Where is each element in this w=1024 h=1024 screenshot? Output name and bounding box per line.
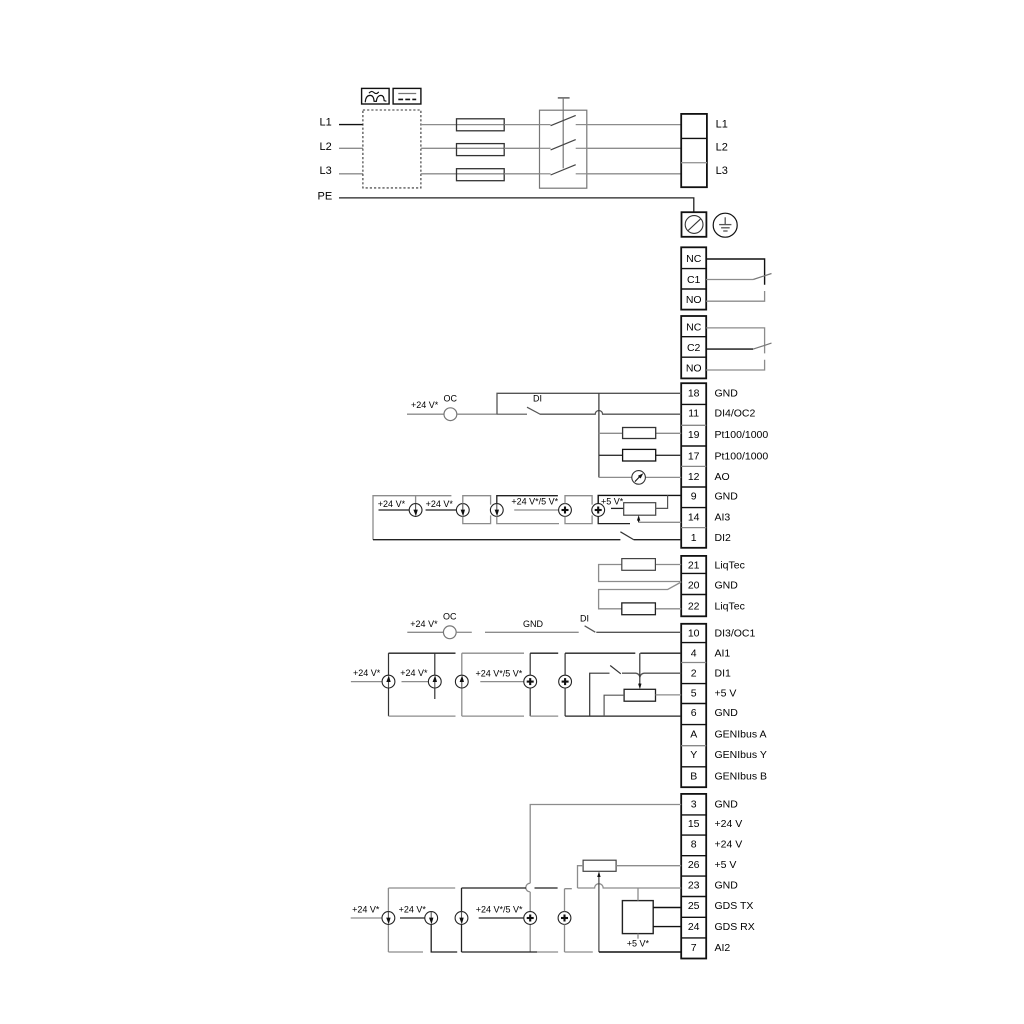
- svg-text:15: 15: [688, 818, 700, 830]
- svg-text:NC: NC: [686, 253, 702, 265]
- svg-text:PE: PE: [318, 190, 333, 202]
- svg-text:+24 V*: +24 V*: [426, 499, 454, 509]
- svg-text:+24 V*/5 V*: +24 V*/5 V*: [511, 497, 558, 507]
- svg-text:DI4/OC2: DI4/OC2: [715, 408, 756, 420]
- svg-text:GND: GND: [715, 490, 739, 502]
- svg-text:23: 23: [688, 879, 700, 891]
- svg-text:DI2: DI2: [715, 532, 732, 544]
- svg-text:12: 12: [688, 471, 700, 483]
- svg-text:22: 22: [688, 600, 700, 612]
- svg-text:2: 2: [691, 667, 697, 679]
- svg-text:OC: OC: [444, 394, 458, 404]
- svg-text:NO: NO: [686, 294, 702, 306]
- svg-text:3: 3: [691, 798, 697, 810]
- svg-text:LiqTec: LiqTec: [715, 600, 745, 612]
- svg-text:8: 8: [691, 838, 697, 850]
- svg-text:26: 26: [688, 859, 700, 871]
- svg-text:C1: C1: [687, 274, 701, 286]
- svg-text:5: 5: [691, 687, 697, 699]
- svg-text:7: 7: [691, 942, 697, 954]
- svg-text:19: 19: [688, 429, 700, 441]
- svg-text:+24 V*: +24 V*: [399, 905, 427, 915]
- svg-text:DI3/OC1: DI3/OC1: [715, 628, 756, 640]
- svg-text:10: 10: [688, 628, 700, 640]
- svg-text:DI1: DI1: [715, 667, 732, 679]
- svg-text:L1: L1: [716, 118, 728, 130]
- svg-text:+24 V*: +24 V*: [411, 400, 439, 410]
- svg-text:GND: GND: [715, 798, 739, 810]
- svg-text:Pt100/1000: Pt100/1000: [715, 429, 769, 441]
- svg-text:18: 18: [688, 387, 700, 399]
- svg-text:AI2: AI2: [715, 942, 731, 954]
- svg-text:GDS RX: GDS RX: [715, 921, 755, 933]
- svg-text:+24 V*: +24 V*: [353, 668, 381, 678]
- svg-text:GENIbus Y: GENIbus Y: [715, 749, 767, 761]
- svg-text:25: 25: [688, 900, 700, 912]
- svg-text:GND: GND: [715, 707, 739, 719]
- svg-text:14: 14: [688, 512, 700, 524]
- svg-text:L3: L3: [320, 165, 332, 177]
- svg-text:GND: GND: [715, 580, 739, 592]
- svg-text:L3: L3: [716, 165, 728, 177]
- svg-text:L1: L1: [320, 116, 332, 128]
- svg-text:GND: GND: [523, 619, 544, 629]
- svg-text:DI: DI: [533, 394, 542, 404]
- svg-text:4: 4: [691, 647, 697, 659]
- svg-text:L2: L2: [320, 141, 332, 153]
- svg-text:AI1: AI1: [715, 647, 731, 659]
- svg-text:+5 V: +5 V: [715, 687, 737, 699]
- svg-text:+24 V*: +24 V*: [400, 668, 428, 678]
- svg-text:24: 24: [688, 921, 700, 933]
- svg-text:Y: Y: [690, 749, 697, 761]
- svg-text:GENIbus B: GENIbus B: [715, 771, 768, 783]
- svg-text:+5 V*: +5 V*: [627, 939, 650, 949]
- svg-text:GENIbus A: GENIbus A: [715, 729, 767, 741]
- svg-text:+24 V*: +24 V*: [410, 619, 438, 629]
- svg-text:LiqTec: LiqTec: [715, 559, 745, 571]
- svg-text:GDS TX: GDS TX: [715, 900, 754, 912]
- svg-text:+5 V*: +5 V*: [601, 496, 624, 506]
- svg-text:+24 V*/5 V*: +24 V*/5 V*: [476, 669, 523, 679]
- svg-text:C2: C2: [687, 342, 701, 354]
- svg-text:+24 V*/5 V*: +24 V*/5 V*: [476, 905, 523, 915]
- svg-text:+24 V*: +24 V*: [352, 905, 380, 915]
- svg-text:Pt100/1000: Pt100/1000: [715, 450, 769, 462]
- svg-text:OC: OC: [443, 611, 457, 621]
- svg-text:GND: GND: [715, 879, 739, 891]
- svg-text:GND: GND: [715, 387, 739, 399]
- svg-text:6: 6: [691, 707, 697, 719]
- svg-text:20: 20: [688, 580, 700, 592]
- svg-text:L2: L2: [716, 142, 728, 154]
- svg-text:A: A: [690, 729, 697, 741]
- svg-text:DI: DI: [580, 613, 589, 623]
- svg-text:+5 V: +5 V: [715, 859, 737, 871]
- svg-text:AO: AO: [715, 471, 730, 483]
- svg-text:21: 21: [688, 559, 700, 571]
- svg-text:AI3: AI3: [715, 512, 731, 524]
- svg-text:NC: NC: [686, 321, 702, 333]
- svg-text:+24 V: +24 V: [715, 818, 743, 830]
- svg-text:+24 V: +24 V: [715, 838, 743, 850]
- svg-text:9: 9: [691, 490, 697, 502]
- svg-text:17: 17: [688, 450, 700, 462]
- svg-text:+24 V*: +24 V*: [378, 499, 406, 509]
- svg-text:1: 1: [691, 532, 697, 544]
- svg-text:B: B: [690, 771, 697, 783]
- svg-text:11: 11: [688, 408, 699, 420]
- svg-text:NO: NO: [686, 362, 702, 374]
